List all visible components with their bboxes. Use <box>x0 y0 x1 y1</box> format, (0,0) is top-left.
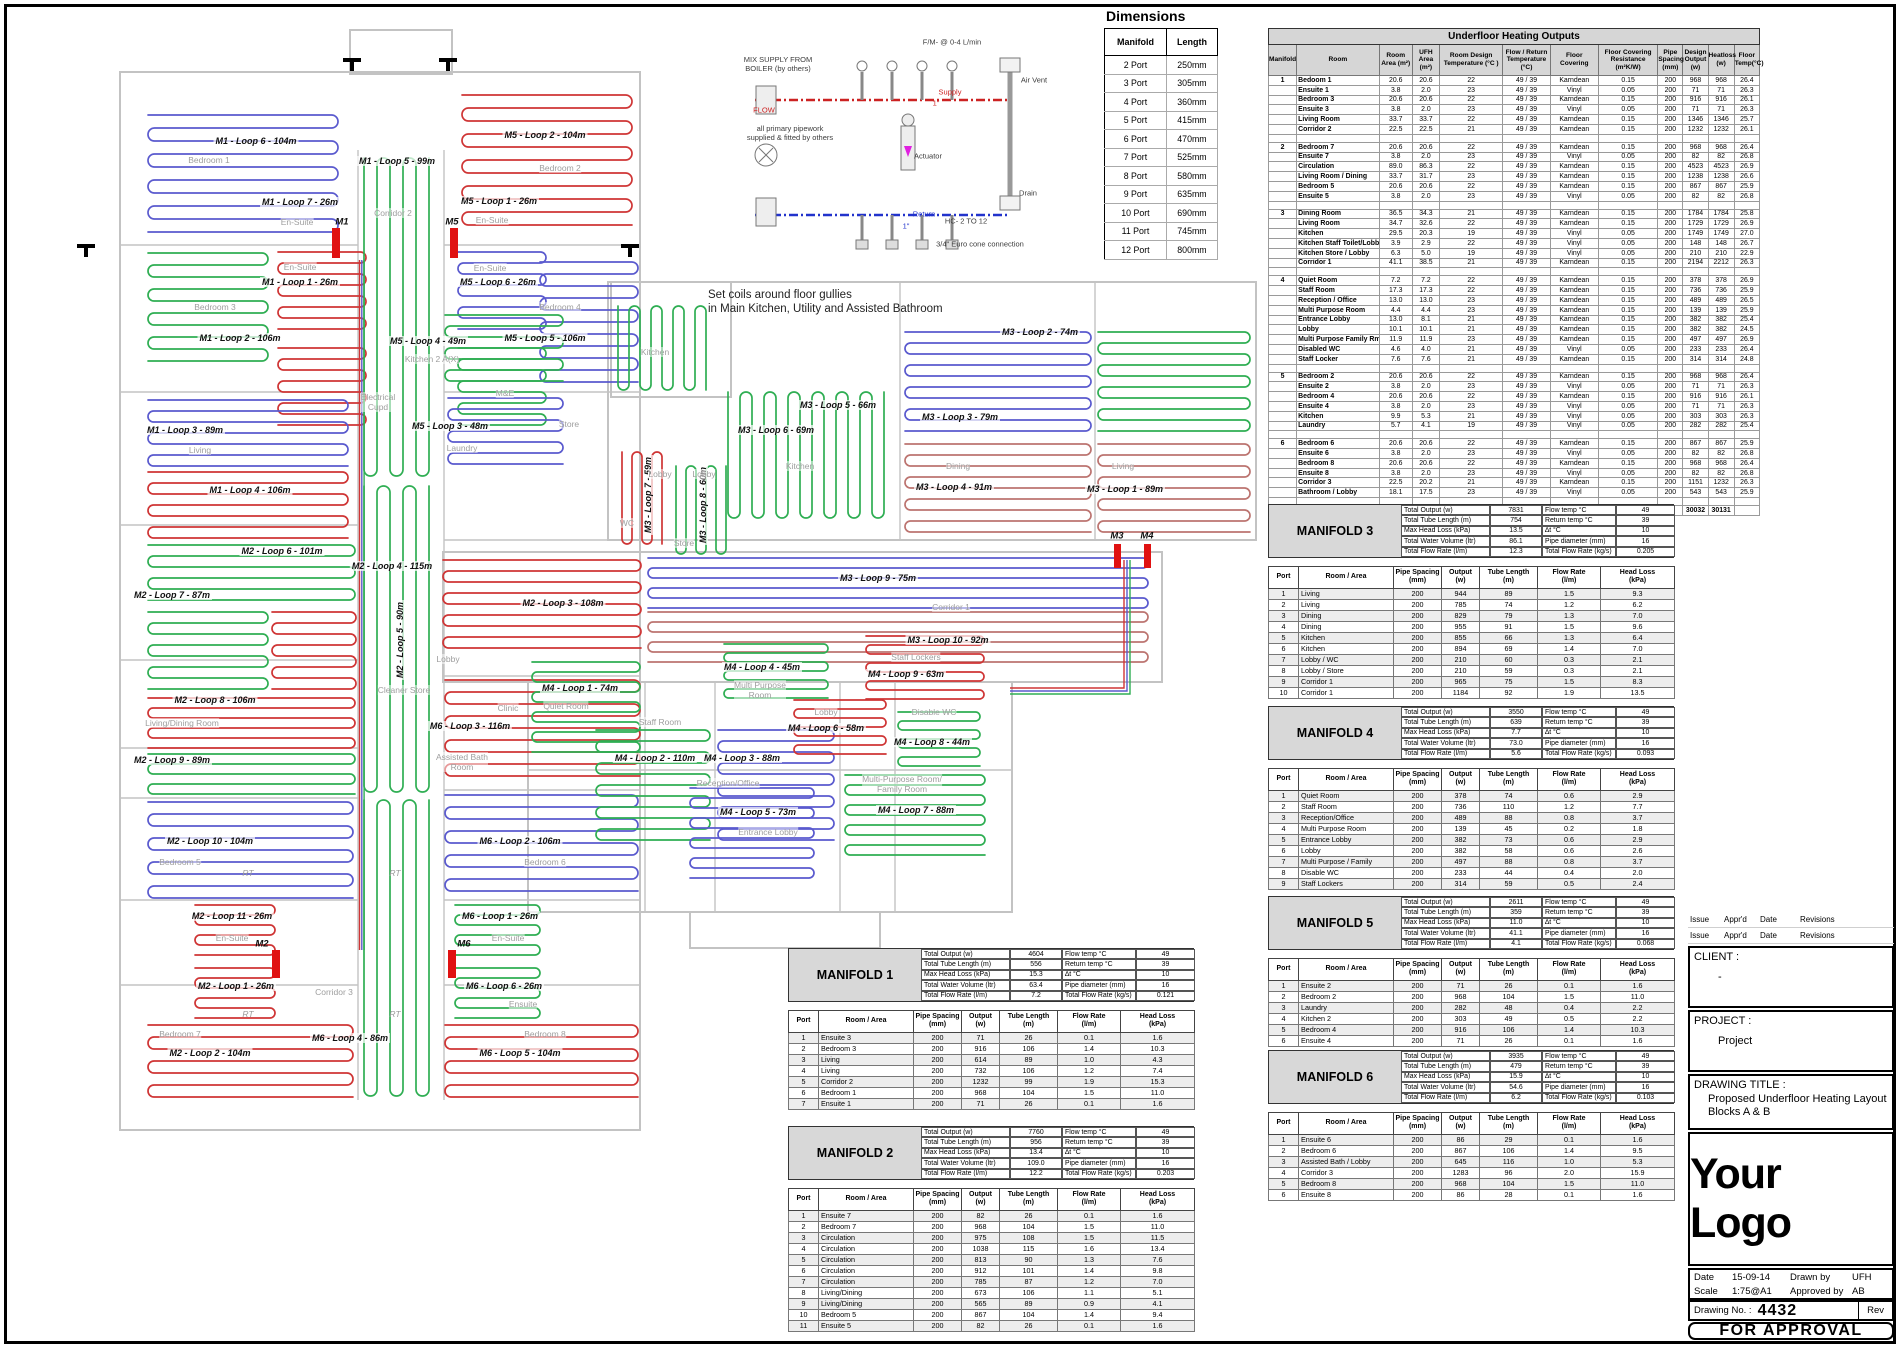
port-cell: Bedroom 5 <box>819 1309 914 1320</box>
uho-cell <box>1269 286 1297 296</box>
port-cell: 200 <box>914 1054 962 1065</box>
drawing-title-box: DRAWING TITLE : Proposed Underfloor Heat… <box>1688 1074 1894 1130</box>
uho-cell <box>1269 315 1297 325</box>
ports-header-cell: Tube Length (m) <box>1480 768 1538 790</box>
uho-cell: 867 <box>1683 439 1708 449</box>
actuator <box>886 240 898 249</box>
uho-cell: 303 <box>1683 411 1708 421</box>
summary-value: 13.4 <box>1010 1148 1062 1158</box>
drawing-number-box: Drawing No. : 4432 Rev <box>1688 1300 1894 1321</box>
uho-cell: 49 / 39 <box>1503 229 1550 239</box>
uho-cell: 49 / 39 <box>1503 172 1550 182</box>
port-cell: 1.4 <box>1538 643 1601 654</box>
uho-cell: Living Room <box>1297 115 1379 125</box>
uho-cell: 25.4 <box>1734 315 1759 325</box>
port-cell: 116 <box>1480 1156 1538 1167</box>
uho-cell: Kitchen Store / Lobby <box>1297 248 1379 258</box>
dimensions-table: Dimensions Manifold Length 2 Port250mm3 … <box>1104 8 1222 260</box>
summary-value: 16 <box>1136 980 1195 990</box>
loop-label: M6 - Loop 3 - 116m <box>428 721 512 731</box>
port-cell: 200 <box>914 1254 962 1265</box>
pipe-bundle <box>1010 560 1127 691</box>
uho-cell: 49 / 39 <box>1503 105 1550 115</box>
uho-cell: 3.8 <box>1379 468 1412 478</box>
room-label: En-Suite <box>281 217 314 227</box>
summary-label: Total Flow Rate (l/m) <box>921 991 1010 1001</box>
port-row: 7Lobby / WC200210600.32.1 <box>1269 654 1675 665</box>
uho-cell: 2.0 <box>1412 191 1439 201</box>
uho-cell: 200 <box>1658 392 1683 402</box>
port-cell: 96 <box>1480 1167 1538 1178</box>
uho-cell: 20.6 <box>1379 439 1412 449</box>
uho-cell: 17.3 <box>1412 286 1439 296</box>
port-cell: 200 <box>914 1065 962 1076</box>
room-label: Entrance Lobby <box>738 827 798 837</box>
drawing-no-value: 4432 <box>1752 1302 1798 1320</box>
uho-cell: 6.3 <box>1379 248 1412 258</box>
uho-cell: 21 <box>1439 209 1502 219</box>
revision-cell: Issue <box>1688 912 1722 927</box>
summary-label: Total Flow Rate (l/m) <box>1401 1093 1490 1103</box>
ports-header-cell: Room / Area <box>819 1010 914 1032</box>
port-cell: 210 <box>1442 665 1480 676</box>
uho-cell: Karndean <box>1550 478 1598 488</box>
summary-label: Total Flow Rate (l/m) <box>1401 939 1490 949</box>
uho-cell: Bedroom 8 <box>1297 458 1379 468</box>
port-cell: Kitchen 2 <box>1299 1013 1394 1024</box>
port-cell: 88 <box>1480 856 1538 867</box>
uho-cell: Bedroom 5 <box>1297 181 1379 191</box>
port-cell: 0.1 <box>1538 980 1601 991</box>
uho-cell: 49 / 39 <box>1503 295 1550 305</box>
uho-separator <box>1269 268 1760 276</box>
loop-label: M5 - Loop 4 - 49m <box>388 336 468 346</box>
uho-cell: 1238 <box>1683 172 1708 182</box>
ports-header-cell: Pipe Spacing (mm) <box>914 1010 962 1032</box>
flow-meter <box>917 61 927 71</box>
port-cell: Corridor 3 <box>1299 1167 1394 1178</box>
port-cell: 0.1 <box>1058 1210 1121 1221</box>
uho-cell: 82 <box>1683 449 1708 459</box>
drawing-sheet: M1 - Loop 6 - 104mM5 - Loop 2 - 104mM1 -… <box>0 0 1900 1348</box>
summary-label: Total Tube Length (m) <box>921 1137 1010 1147</box>
port-cell: 382 <box>1442 845 1480 856</box>
uho-cell: 2 <box>1269 142 1297 152</box>
uho-cell: 24.8 <box>1734 354 1759 364</box>
uho-cell: 23 <box>1439 449 1502 459</box>
uho-row: Kitchen Store / Lobby6.35.01949 / 39Viny… <box>1269 248 1760 258</box>
port-cell: 2.9 <box>1601 834 1675 845</box>
uho-data: Underfloor Heating OutputsManifoldRoomRo… <box>1268 28 1760 516</box>
summary-value: 49 <box>1616 505 1675 515</box>
port-row: 6Ensuite 820086280.11.6 <box>1269 1189 1675 1200</box>
uho-row: Ensuite 83.82.02349 / 39Vinyl0.052008282… <box>1269 468 1760 478</box>
uho-cell: 20.6 <box>1412 392 1439 402</box>
port-cell: 200 <box>1394 1002 1442 1013</box>
port-cell: 200 <box>1394 632 1442 643</box>
uho-cell: 26.8 <box>1734 468 1759 478</box>
port-cell: 2.9 <box>1601 790 1675 801</box>
loop-label: M1 - Loop 6 - 104m <box>213 136 298 146</box>
room-label: En-Suite <box>284 262 317 272</box>
summary-value: 16 <box>1136 1158 1195 1168</box>
uho-cell: Vinyl <box>1550 421 1598 431</box>
summary-label: Pipe diameter (mm) <box>1542 536 1616 546</box>
port-cell: Kitchen <box>1299 632 1394 643</box>
uho-cell: Karndean <box>1550 458 1598 468</box>
loop-label: M4 - Loop 7 - 88m <box>876 805 956 815</box>
port-cell: 9.3 <box>1601 588 1675 599</box>
port-cell: 3 <box>1269 1002 1299 1013</box>
port-cell: 4.1 <box>1121 1298 1195 1309</box>
port-cell: 0.6 <box>1538 834 1601 845</box>
uho-row: Kitchen29.520.31949 / 39Vinyl0.052001749… <box>1269 229 1760 239</box>
wall-outline <box>690 912 880 948</box>
summary-value: 0.103 <box>1616 1093 1675 1103</box>
port-cell: 3 <box>1269 1156 1299 1167</box>
uho-cell: 33.7 <box>1379 172 1412 182</box>
loop-label: M4 - Loop 3 - 88m <box>702 753 782 763</box>
room-label: Store <box>674 538 694 548</box>
uho-title: Underfloor Heating Outputs <box>1269 29 1760 45</box>
heating-coil <box>622 452 662 544</box>
port-cell: 3 <box>1269 812 1299 823</box>
uho-cell: 0.15 <box>1598 286 1657 296</box>
summary-value: 7831 <box>1490 505 1542 515</box>
port-cell: 7.4 <box>1121 1065 1195 1076</box>
port-cell: 60 <box>1480 654 1538 665</box>
ports-header-cell: Pipe Spacing (mm) <box>1394 768 1442 790</box>
port-cell: 1.8 <box>1601 823 1675 834</box>
summary-label: Total Tube Length (m) <box>1401 907 1490 917</box>
port-cell: 200 <box>914 1276 962 1287</box>
uho-separator <box>1269 201 1760 209</box>
port-cell: 1 <box>1269 790 1299 801</box>
uho-cell: 0.05 <box>1598 421 1657 431</box>
manifold-name: MANIFOLD 5 <box>1269 897 1401 949</box>
port-cell: Bedroom 7 <box>819 1221 914 1232</box>
room-label: Kitchen <box>641 347 669 357</box>
port-cell: 489 <box>1442 812 1480 823</box>
uho-cell: Living Room <box>1297 219 1379 229</box>
uho-cell: 20.6 <box>1412 95 1439 105</box>
uho-cell: 33.7 <box>1379 115 1412 125</box>
uho-cell: 3.8 <box>1379 401 1412 411</box>
uho-cell: 25.9 <box>1734 181 1759 191</box>
dimensions-cell: 3 Port <box>1105 74 1167 93</box>
approved-by-value: AB <box>1852 1286 1865 1297</box>
dimensions-row: 5 Port415mm <box>1105 111 1218 130</box>
drawing-no-label: Drawing No. : <box>1690 1305 1752 1316</box>
summary-value: 39 <box>1136 1137 1195 1147</box>
port-cell: 74 <box>1480 599 1538 610</box>
uho-cell <box>1269 354 1297 364</box>
summary-value: 86.1 <box>1490 536 1542 546</box>
uho-cell: 200 <box>1658 411 1683 421</box>
uho-cell: 22 <box>1439 95 1502 105</box>
port-row: 1Quiet Room200378740.62.9 <box>1269 790 1675 801</box>
room-label: Cleaner Store <box>378 685 430 695</box>
uho-row: Lobby10.110.12149 / 39Karndean0.15200382… <box>1269 325 1760 335</box>
room-label: Bedroom 3 <box>194 302 236 312</box>
uho-header-cell: Heatloss (w) <box>1708 45 1734 76</box>
uho-cell: 2194 <box>1683 258 1708 268</box>
summary-label: Total Tube Length (m) <box>921 959 1010 969</box>
port-cell: 200 <box>914 1087 962 1098</box>
port-cell: 736 <box>1442 801 1480 812</box>
port-row: 5Bedroom 82009681041.511.0 <box>1269 1178 1675 1189</box>
port-cell: Lobby <box>1299 845 1394 856</box>
summary-label: Return temp °C <box>1542 907 1616 917</box>
uho-cell: 0.05 <box>1598 191 1657 201</box>
uho-cell <box>1269 344 1297 354</box>
dimensions-row: 9 Port635mm <box>1105 185 1218 204</box>
port-cell: Living/Dining <box>819 1287 914 1298</box>
port-cell: 71 <box>962 1032 1000 1043</box>
port-cell: 1 <box>789 1032 819 1043</box>
port-cell: 1038 <box>962 1243 1000 1254</box>
uho-cell: 23 <box>1439 305 1502 315</box>
uho-cell: 22 <box>1439 372 1502 382</box>
heating-coil <box>866 636 984 699</box>
uho-cell: 489 <box>1708 295 1734 305</box>
manifold-summary: MANIFOLD 3Total Output (w)7831Flow temp … <box>1268 504 1674 558</box>
port-cell: 3 <box>789 1054 819 1065</box>
uho-cell: 200 <box>1658 248 1683 258</box>
uho-cell: 26.5 <box>1734 295 1759 305</box>
uho-row: Living Room / Dining33.731.72349 / 39Kar… <box>1269 172 1760 182</box>
dimensions-cell: 800mm <box>1166 241 1217 260</box>
port-cell: 6 <box>1269 643 1299 654</box>
uho-cell: 41.1 <box>1379 258 1412 268</box>
uho-cell: Vinyl <box>1550 488 1598 498</box>
port-cell: 1.5 <box>1538 621 1601 632</box>
port-row: 7Circulation200785871.27.0 <box>789 1276 1195 1287</box>
port-cell: 3 <box>789 1232 819 1243</box>
uho-cell: 20.6 <box>1412 76 1439 86</box>
uho-row: Multi Purpose Family Rm11.911.92349 / 39… <box>1269 335 1760 345</box>
drawn-by-value: UFH <box>1852 1272 1872 1283</box>
loop-label: M4 - Loop 6 - 58m <box>786 723 866 733</box>
port-row: 4Multi Purpose Room200139450.21.8 <box>1269 823 1675 834</box>
port-cell: 104 <box>1480 1178 1538 1189</box>
uho-cell: 736 <box>1683 286 1708 296</box>
uho-row: Ensuite 73.82.02349 / 39Vinyl0.052008282… <box>1269 152 1760 162</box>
port-cell: 200 <box>1394 867 1442 878</box>
heating-coil <box>148 802 353 898</box>
port-cell: 200 <box>914 1243 962 1254</box>
port-row: 2Bedroom 32009161061.410.3 <box>789 1043 1195 1054</box>
uho-cell: 200 <box>1658 315 1683 325</box>
summary-value: 7.2 <box>1010 991 1062 1001</box>
uho-cell: 0.05 <box>1598 152 1657 162</box>
ports-header-cell: Head Loss (kPa) <box>1601 566 1675 588</box>
port-row: 5Kitchen200855661.36.4 <box>1269 632 1675 643</box>
port-cell: 1.0 <box>1538 1156 1601 1167</box>
port-cell: 0.6 <box>1538 845 1601 856</box>
uho-cell: 916 <box>1683 95 1708 105</box>
port-cell: Disable WC <box>1299 867 1394 878</box>
port-cell: 58 <box>1480 845 1538 856</box>
drawing-title-line1: Proposed Underfloor Heating Layout <box>1708 1093 1892 1105</box>
uho-cell: 82 <box>1683 468 1708 478</box>
summary-label: Total Water Volume (ltr) <box>921 980 1010 990</box>
uho-cell: Karndean <box>1550 95 1598 105</box>
uho-cell: Karndean <box>1550 172 1598 182</box>
port-cell: 9.4 <box>1121 1309 1195 1320</box>
port-cell: 829 <box>1442 610 1480 621</box>
dimensions-row: 8 Port580mm <box>1105 167 1218 186</box>
uho-cell: 22 <box>1439 181 1502 191</box>
uho-cell: 71 <box>1708 105 1734 115</box>
uho-separator <box>1269 134 1760 142</box>
room-label: Lobby <box>692 469 715 479</box>
port-cell: 785 <box>962 1276 1000 1287</box>
manifold-block-5: MANIFOLD 5Total Output (w)2611Flow temp … <box>1268 896 1674 1047</box>
port-cell: Ensuite 4 <box>1299 1035 1394 1046</box>
uho-cell: 22.9 <box>1734 248 1759 258</box>
uho-cell: 26.3 <box>1734 401 1759 411</box>
uho-cell: 11.9 <box>1412 335 1439 345</box>
uho-cell: 968 <box>1708 76 1734 86</box>
summary-label: Total Water Volume (ltr) <box>1401 1082 1490 1092</box>
port-cell: 8 <box>789 1287 819 1298</box>
uho-cell: 0.05 <box>1598 344 1657 354</box>
port-cell: 1 <box>1269 980 1299 991</box>
summary-label: Max Head Loss (kPa) <box>1401 526 1490 536</box>
summary-value: 49 <box>1616 707 1675 717</box>
summary-value: 2611 <box>1490 897 1542 907</box>
port-cell: 378 <box>1442 790 1480 801</box>
summary-value: 16 <box>1616 928 1675 938</box>
uho-cell <box>1269 105 1297 115</box>
port-cell: Ensuite 1 <box>819 1098 914 1109</box>
port-cell: 200 <box>1394 878 1442 889</box>
uho-cell <box>1269 392 1297 402</box>
uho-cell: Corridor 1 <box>1297 258 1379 268</box>
uho-cell: Kitchen <box>1297 411 1379 421</box>
port-cell: 82 <box>962 1210 1000 1221</box>
port-cell: Lobby / Store <box>1299 665 1394 676</box>
uho-row: Corridor 222.522.52149 / 39Karndean0.152… <box>1269 124 1760 134</box>
ports-header-cell: Port <box>1269 566 1299 588</box>
port-cell: 2.4 <box>1601 878 1675 889</box>
port-cell: 2.0 <box>1538 1167 1601 1178</box>
port-cell: Multi Purpose Room <box>1299 823 1394 834</box>
uho-cell: 18.1 <box>1379 488 1412 498</box>
uho-cell: 968 <box>1708 142 1734 152</box>
port-cell: 8 <box>1269 665 1299 676</box>
port-cell: 9 <box>1269 878 1299 889</box>
summary-value: 6.2 <box>1490 1093 1542 1103</box>
room-label: M&E <box>496 388 514 398</box>
port-cell: 314 <box>1442 878 1480 889</box>
port-cell: 200 <box>1394 610 1442 621</box>
uho-cell: Kitchen <box>1297 229 1379 239</box>
uho-cell: Vinyl <box>1550 344 1598 354</box>
loop-label: M2 - Loop 9 - 89m <box>132 755 212 765</box>
uho-cell: 26.3 <box>1734 411 1759 421</box>
port-cell: 4 <box>1269 823 1299 834</box>
uho-cell: Reception / Office <box>1297 295 1379 305</box>
port-cell: 82 <box>962 1320 1000 1331</box>
summary-label: Return temp °C <box>1542 717 1616 727</box>
summary-label: Total Flow Rate (l/m) <box>1401 547 1490 557</box>
uho-cell: 26.1 <box>1734 95 1759 105</box>
loop-label: M6 - Loop 5 - 104m <box>477 1048 562 1058</box>
uho-cell: 20.6 <box>1379 392 1412 402</box>
port-cell: 303 <box>1442 1013 1480 1024</box>
uho-cell: 49 / 39 <box>1503 248 1550 258</box>
revision-cell: Date <box>1758 912 1798 927</box>
uho-cell: 22 <box>1439 142 1502 152</box>
summary-value: 10 <box>1616 918 1675 928</box>
uho-cell: 2.9 <box>1412 238 1439 248</box>
uho-cell: 968 <box>1683 458 1708 468</box>
manifold-ports-table: PortRoom / AreaPipe Spacing (mm)Output (… <box>788 1188 1195 1332</box>
summary-value: 639 <box>1490 717 1542 727</box>
summary-label: Total Water Volume (ltr) <box>921 1158 1010 1168</box>
summary-value: 4604 <box>1010 949 1062 959</box>
manifold-marker <box>1144 544 1151 568</box>
port-cell: 0.1 <box>1058 1098 1121 1109</box>
summary-value: 754 <box>1490 515 1542 525</box>
port-cell: 11.0 <box>1601 1178 1675 1189</box>
summary-value: 0.121 <box>1136 991 1195 1001</box>
uho-cell: 49 / 39 <box>1503 401 1550 411</box>
uho-cell: 49 / 39 <box>1503 181 1550 191</box>
port-cell: 1.6 <box>1121 1320 1195 1331</box>
port-row: 5Corridor 22001232991.915.3 <box>789 1076 1195 1087</box>
uho-cell: 382 <box>1708 315 1734 325</box>
revision-cell: Appr'd <box>1722 928 1758 943</box>
uho-cell: 82 <box>1708 191 1734 201</box>
summary-label: Flow temp °C <box>1542 505 1616 515</box>
port-cell: Reception/Office <box>1299 812 1394 823</box>
port-row: 4Corridor 32001283962.015.9 <box>1269 1167 1675 1178</box>
port-cell: 1 <box>1269 588 1299 599</box>
port-cell: 2 <box>1269 991 1299 1002</box>
summary-value: 5.6 <box>1490 749 1542 759</box>
manifold-summary: MANIFOLD 5Total Output (w)2611Flow temp … <box>1268 896 1674 950</box>
uho-cell: Ensuite 5 <box>1297 191 1379 201</box>
port-row: 2Bedroom 22009681041.511.0 <box>1269 991 1675 1002</box>
uho-row: Disabled WC4.64.02149 / 39Vinyl0.0520023… <box>1269 344 1760 354</box>
port-cell: 6 <box>1269 845 1299 856</box>
manifold-name: MANIFOLD 3 <box>1269 505 1401 557</box>
port-cell: Dining <box>1299 621 1394 632</box>
uho-cell: Vinyl <box>1550 468 1598 478</box>
uho-cell <box>1269 468 1297 478</box>
port-cell: 28 <box>1480 1189 1538 1200</box>
loop-label: M1 - Loop 4 - 106m <box>207 485 292 495</box>
uho-cell: 20.6 <box>1412 372 1439 382</box>
port-cell: Living <box>819 1065 914 1076</box>
room-label: Staff Lockers <box>891 652 940 662</box>
summary-label: Total Water Volume (ltr) <box>1401 738 1490 748</box>
dimensions-cell: 6 Port <box>1105 130 1167 149</box>
port-cell: 0.9 <box>1058 1298 1121 1309</box>
uho-cell: 23 <box>1439 152 1502 162</box>
uho-cell: 2.0 <box>1412 468 1439 478</box>
port-cell: 15.3 <box>1121 1076 1195 1087</box>
port-row: 2Bedroom 62008671061.49.5 <box>1269 1145 1675 1156</box>
uho-cell: 968 <box>1708 372 1734 382</box>
uho-cell: 26.7 <box>1734 238 1759 248</box>
uho-cell: 49 / 39 <box>1503 258 1550 268</box>
uho-cell: 200 <box>1658 401 1683 411</box>
room-label: Kitchen <box>786 461 814 471</box>
